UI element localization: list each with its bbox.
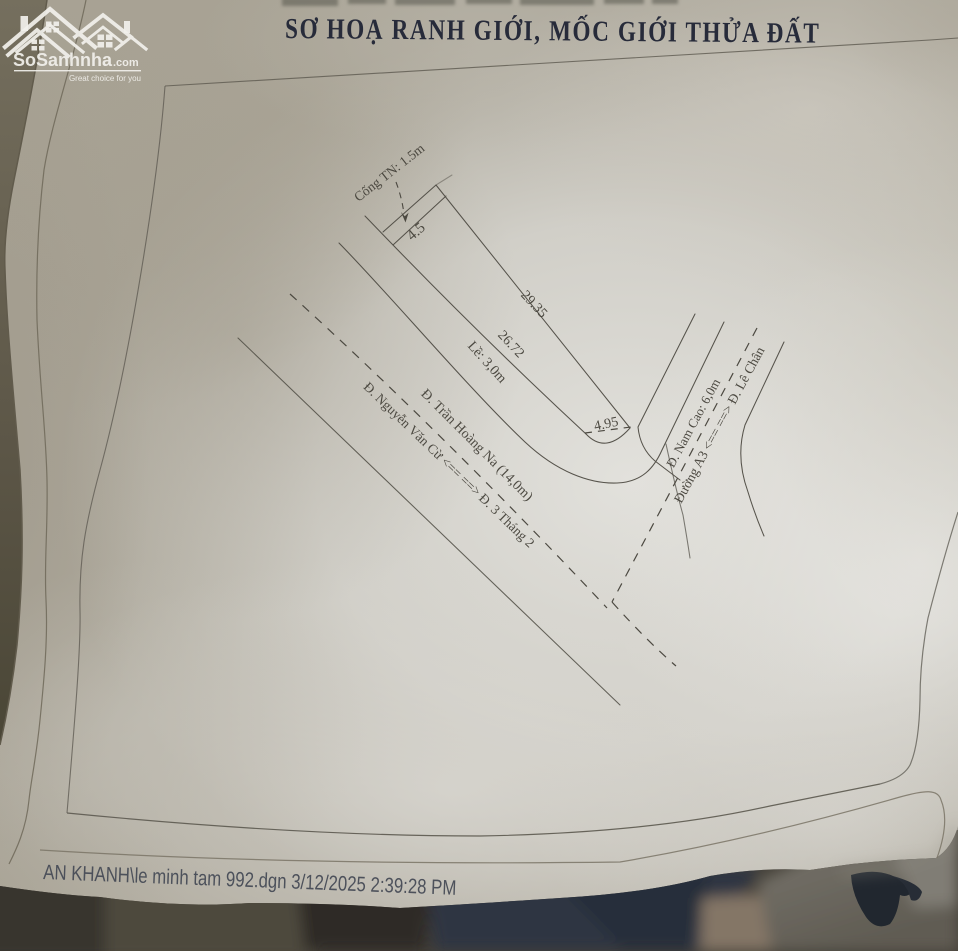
svg-text:.com: .com [113,57,139,69]
svg-text:SƠ HOẠ RANH GIỚI, MỐC GIỚI THỬ: SƠ HOẠ RANH GIỚI, MỐC GIỚI THỬA ĐẤT [285,10,821,49]
svg-text:Great choice for you: Great choice for you [69,74,141,83]
svg-text:SoSanhnha: SoSanhnha [13,50,113,70]
